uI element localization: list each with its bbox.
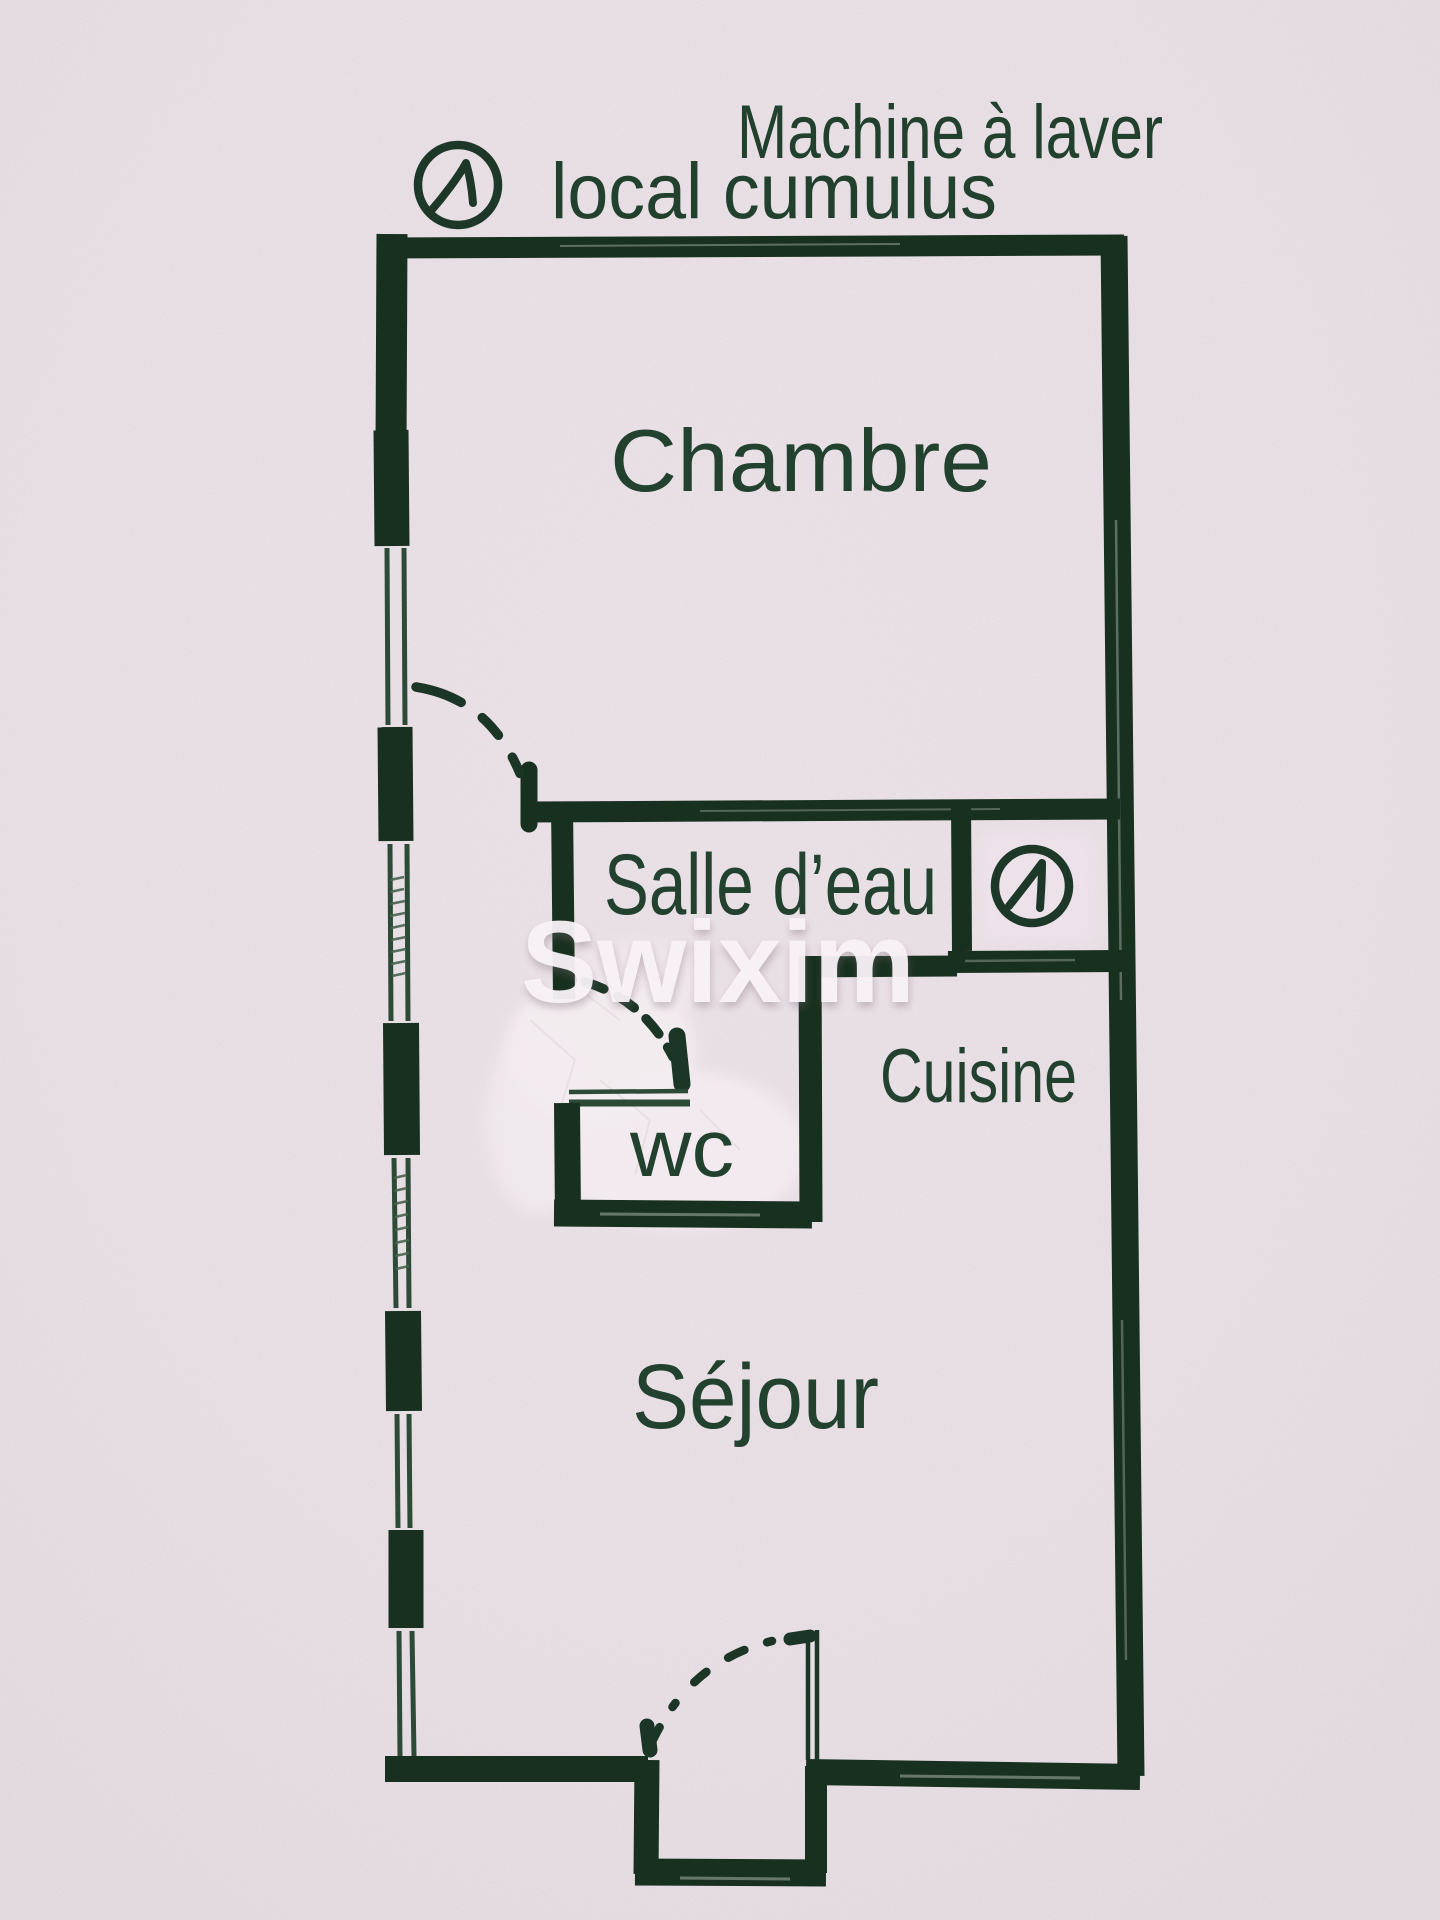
svg-text:wc: wc xyxy=(629,1103,734,1194)
svg-text:Séjour: Séjour xyxy=(632,1346,879,1448)
svg-text:Chambre: Chambre xyxy=(610,411,992,510)
svg-text:Cuisine: Cuisine xyxy=(880,1034,1077,1119)
svg-text:local cumulus: local cumulus xyxy=(551,146,997,235)
svg-text:Swixim: Swixim xyxy=(521,897,915,1027)
